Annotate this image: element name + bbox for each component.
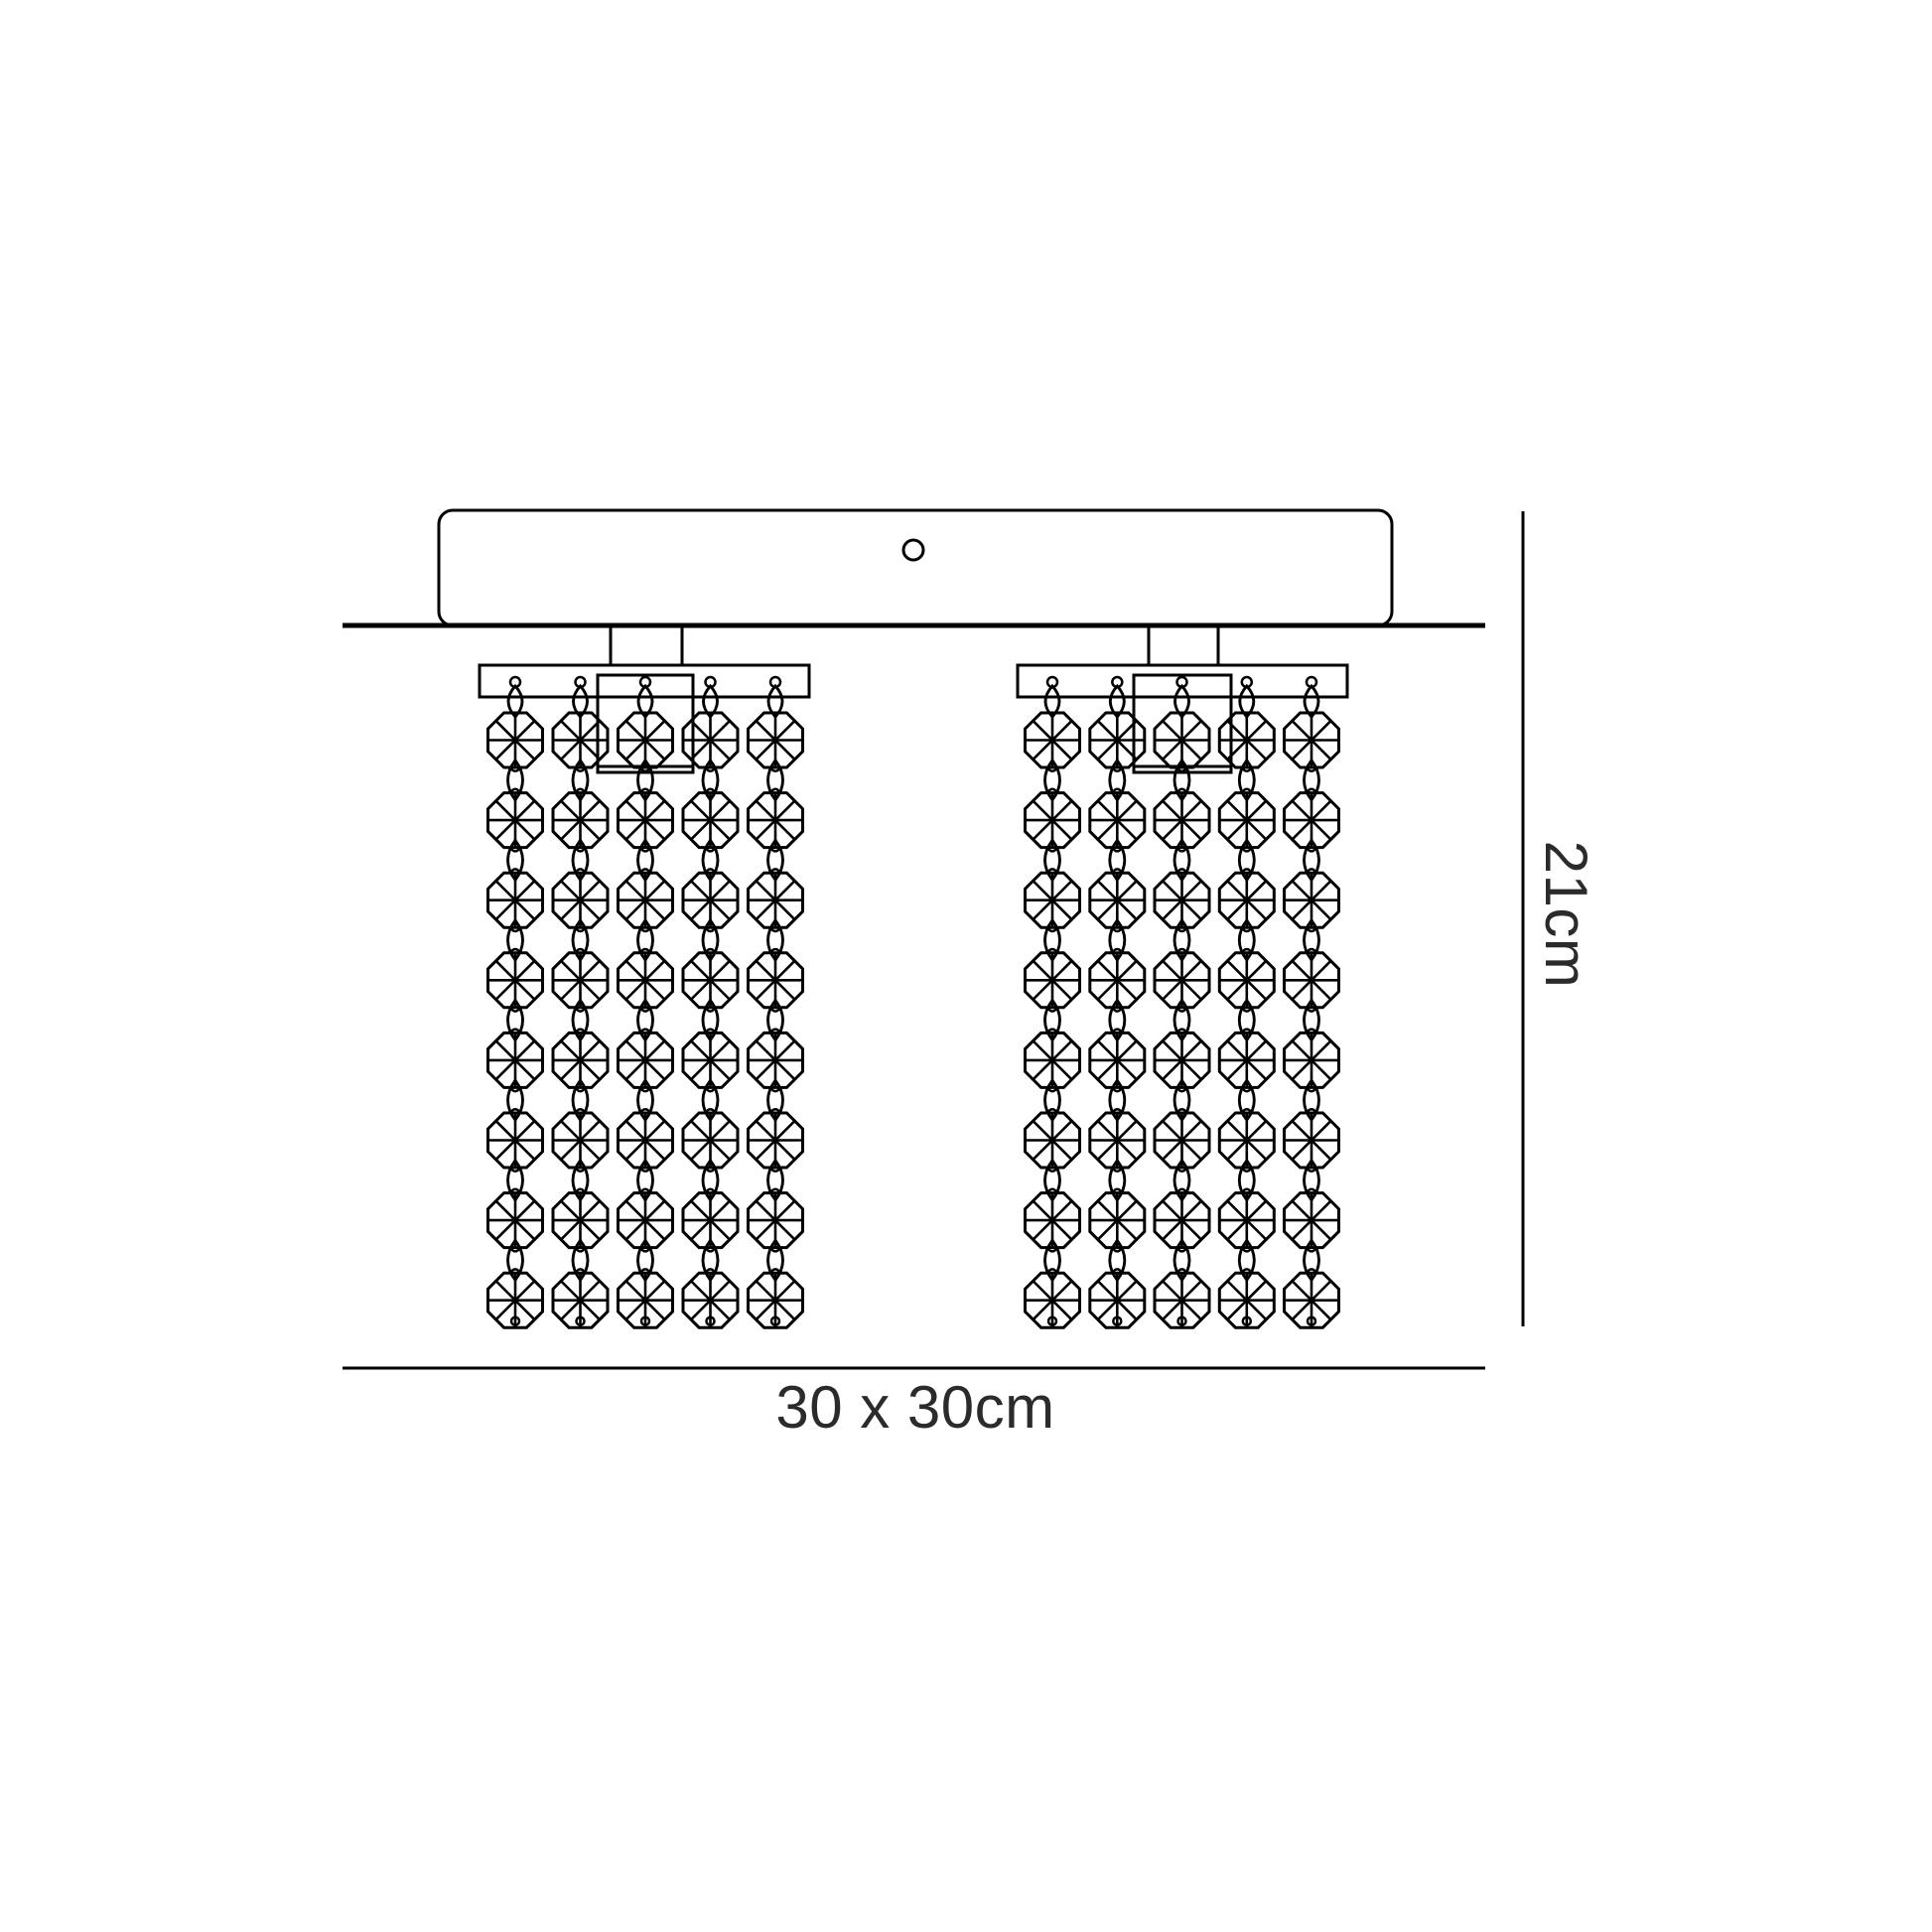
crystal-octagon (749, 1273, 803, 1327)
crystal-holder-bar (480, 665, 809, 697)
crystal-holder-bar (1018, 665, 1347, 697)
fixture-right (1018, 625, 1347, 1327)
crystal-strand (683, 677, 738, 1327)
crystal-octagon (1090, 1273, 1145, 1327)
crystal-octagon (1155, 1273, 1209, 1327)
crystal-octagon (619, 1273, 673, 1327)
height-dimension-label: 21cm (1533, 841, 1599, 989)
crystal-octagon (683, 1273, 738, 1327)
crystal-strand (553, 677, 608, 1327)
crystal-octagon (1219, 1273, 1274, 1327)
ceiling-light-technical-drawing: 21cm 30 x 30cm (0, 0, 1932, 1932)
crystal-strand (1219, 677, 1274, 1327)
crystal-octagon (1285, 1273, 1339, 1327)
crystal-strand (1026, 677, 1080, 1327)
stem (611, 625, 682, 665)
crystal-strand (1285, 677, 1339, 1327)
fixture-left (480, 625, 809, 1327)
crystal-strand (1155, 677, 1209, 1327)
crystal-octagon (488, 1273, 543, 1327)
width-dimension-label: 30 x 30cm (775, 1374, 1054, 1441)
crystal-octagon (1026, 1273, 1080, 1327)
crystal-strand (749, 677, 803, 1327)
fixture-structure-layer (343, 510, 1523, 1368)
diagram-canvas: 21cm 30 x 30cm (0, 0, 1932, 1932)
canopy-plate (439, 510, 1392, 625)
crystal-strand (1090, 677, 1145, 1327)
crystal-strand (488, 677, 543, 1327)
crystal-strand (619, 677, 673, 1327)
stem (1149, 625, 1218, 665)
crystal-octagon (553, 1273, 608, 1327)
